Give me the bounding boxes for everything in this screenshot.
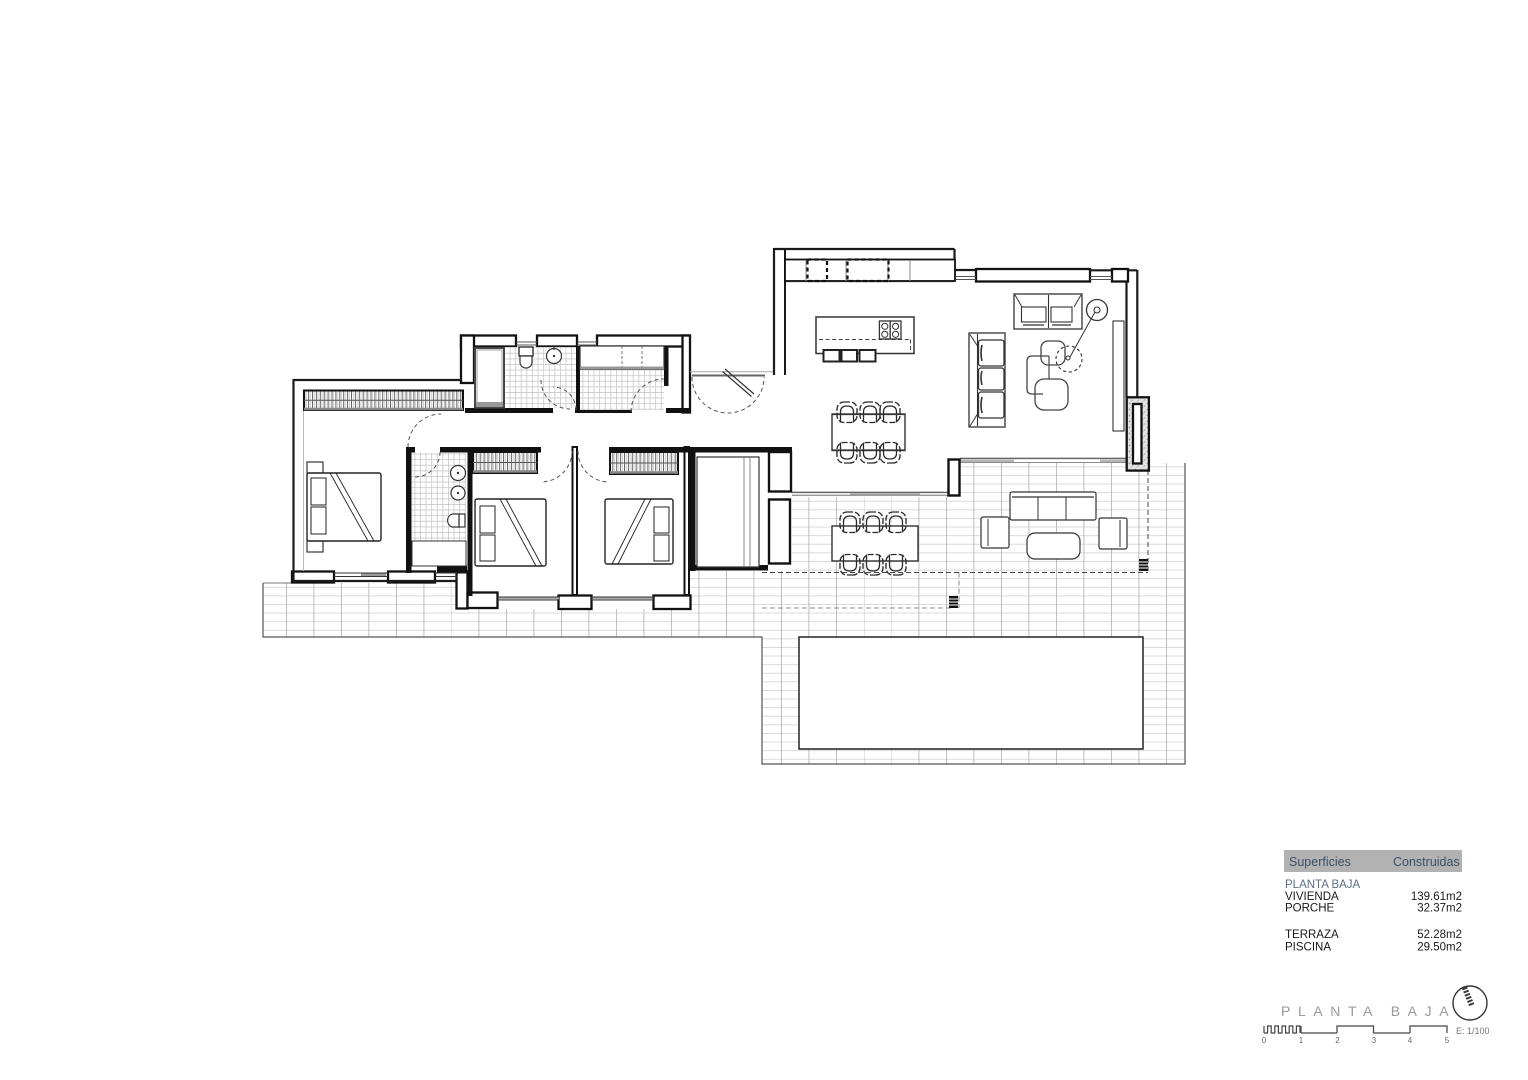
svg-text:0: 0 (1262, 1036, 1267, 1045)
svg-text:52.28m2: 52.28m2 (1417, 929, 1462, 941)
svg-text:VIVIENDA: VIVIENDA (1285, 891, 1339, 903)
svg-text:PLANTA BAJA: PLANTA BAJA (1285, 879, 1361, 891)
svg-text:4: 4 (1408, 1036, 1413, 1045)
svg-text:29.50m2: 29.50m2 (1417, 942, 1462, 954)
svg-text:Superficies: Superficies (1289, 855, 1351, 869)
svg-text:PORCHE: PORCHE (1285, 903, 1335, 915)
svg-text:PLANTA BAJA: PLANTA BAJA (1281, 1003, 1456, 1019)
svg-text:5: 5 (1445, 1036, 1450, 1045)
svg-text:E: 1/100: E: 1/100 (1456, 1026, 1490, 1036)
svg-text:3: 3 (1372, 1036, 1377, 1045)
svg-text:Construidas: Construidas (1393, 855, 1460, 869)
svg-text:139.61m2: 139.61m2 (1411, 891, 1462, 903)
svg-text:2: 2 (1335, 1036, 1340, 1045)
svg-text:1: 1 (1299, 1036, 1304, 1045)
svg-text:PISCINA: PISCINA (1285, 942, 1331, 954)
svg-text:32.37m2: 32.37m2 (1417, 903, 1462, 915)
svg-text:TERRAZA: TERRAZA (1285, 929, 1339, 941)
